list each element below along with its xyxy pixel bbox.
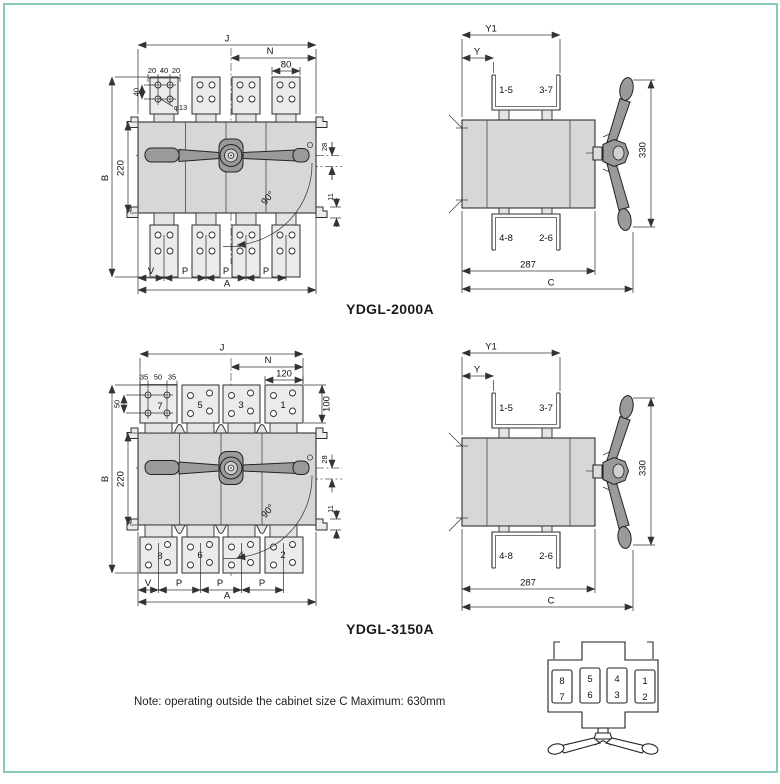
- dim-20a: 20: [148, 66, 156, 75]
- dim-p2: P: [217, 578, 223, 589]
- dim-p1: P: [176, 578, 182, 589]
- top-bracket: 1-5 3-7: [492, 393, 560, 438]
- dim-287: 287: [520, 260, 536, 271]
- dim-j: J: [220, 343, 225, 354]
- dim-220: 220: [116, 471, 127, 487]
- bottom-bracket: 4-8 2-6: [492, 208, 560, 250]
- bottom-bracket: 4-8 2-6: [492, 526, 560, 568]
- slot4-top: 1: [642, 676, 647, 687]
- ydgl-2000a-side-view: 1-5 3-7 4-8 2-6: [443, 18, 673, 310]
- model-title-2000a: YDGL-2000A: [325, 301, 455, 317]
- pole-number-3: 3: [238, 400, 243, 411]
- slot1-bottom: 7: [559, 692, 564, 703]
- catalog-page: 90° J N 80 20 40 20 40 φ13 B 220: [0, 0, 780, 784]
- dim-p2: P: [223, 266, 229, 277]
- dim-40t: 40: [160, 66, 168, 75]
- dim-j: J: [225, 34, 230, 45]
- cabinet-note: Note: operating outside the cabinet size…: [134, 696, 445, 708]
- dim-28: 28: [320, 455, 329, 463]
- top-view-schematic: 8 7 5 6 4 3 1 2: [533, 626, 688, 776]
- dim-20b: 20: [172, 66, 180, 75]
- dim-p3: P: [259, 578, 265, 589]
- handle-top-view: [547, 728, 659, 756]
- pole-number-7: 7: [157, 401, 162, 412]
- top-terminal-pads: 7 5 3 1: [140, 385, 303, 423]
- dim-11: 11: [326, 193, 335, 201]
- dim-35a: 35: [140, 373, 148, 382]
- slot2-top: 5: [587, 674, 592, 685]
- model-title-3150a: YDGL-3150A: [325, 621, 455, 637]
- slot2-bottom: 6: [587, 690, 592, 701]
- pole-number-2: 2: [280, 550, 285, 561]
- dim-c: C: [548, 596, 555, 607]
- terminal-label-3-7: 3-7: [539, 85, 553, 96]
- dim-120: 120: [276, 369, 292, 380]
- dim-100: 100: [322, 396, 333, 412]
- dim-y1: Y1: [485, 342, 497, 353]
- terminal-label-3-7: 3-7: [539, 403, 553, 414]
- dim-330: 330: [638, 460, 649, 476]
- dim-11: 11: [326, 505, 335, 513]
- dim-p1: P: [182, 266, 188, 277]
- slot4-bottom: 2: [642, 692, 647, 703]
- top-terminal-pads: [150, 77, 300, 114]
- dim-a: A: [224, 279, 231, 290]
- terminal-label-1-5: 1-5: [499, 403, 513, 414]
- switch-body-side: [449, 433, 595, 531]
- dim-p3: P: [263, 266, 269, 277]
- dim-50t: 50: [154, 373, 162, 382]
- dim-v: V: [148, 266, 155, 277]
- dim-y1: Y1: [485, 24, 497, 35]
- ydgl-3150a-side-view: 1-5 3-7 4-8 2-6: [443, 336, 673, 628]
- slot3-bottom: 3: [614, 690, 619, 701]
- dim-287: 287: [520, 578, 536, 589]
- dim-n: N: [267, 46, 274, 57]
- slot1-top: 8: [559, 676, 564, 687]
- dim-220: 220: [116, 160, 127, 176]
- pole-number-6: 6: [197, 550, 202, 561]
- dim-b: B: [100, 476, 111, 482]
- terminal-label-2-6: 2-6: [539, 233, 553, 244]
- terminal-label-2-6: 2-6: [539, 551, 553, 562]
- pole-number-1: 1: [280, 400, 285, 411]
- pole-number-4: 4: [238, 550, 243, 561]
- dim-a: A: [224, 591, 231, 602]
- dim-c: C: [548, 278, 555, 289]
- switch-body-side: [449, 115, 595, 213]
- terminal-label-4-8: 4-8: [499, 233, 513, 244]
- slot3-top: 4: [614, 674, 619, 685]
- dim-330: 330: [638, 142, 649, 158]
- dim-80: 80: [281, 60, 292, 71]
- top-bracket: 1-5 3-7: [492, 75, 560, 120]
- ydgl-3150a-front-view: 7 5 3 1 8 6 4 2: [100, 338, 372, 610]
- dim-v: V: [145, 578, 152, 589]
- dim-y: Y: [474, 47, 481, 58]
- dim-35b: 35: [168, 373, 176, 382]
- ydgl-2000a-front-view: 90° J N 80 20 40 20 40 φ13 B 220: [100, 28, 372, 300]
- dim-28: 28: [320, 143, 329, 151]
- dim-50v: 50: [113, 400, 122, 408]
- terminal-label-4-8: 4-8: [499, 551, 513, 562]
- dim-b: B: [100, 175, 111, 181]
- terminal-label-1-5: 1-5: [499, 85, 513, 96]
- dim-40v: 40: [132, 88, 141, 96]
- dim-hole-diameter: φ13: [174, 103, 187, 112]
- dim-y: Y: [474, 365, 481, 376]
- pole-number-5: 5: [197, 400, 202, 411]
- dim-n: N: [265, 355, 272, 366]
